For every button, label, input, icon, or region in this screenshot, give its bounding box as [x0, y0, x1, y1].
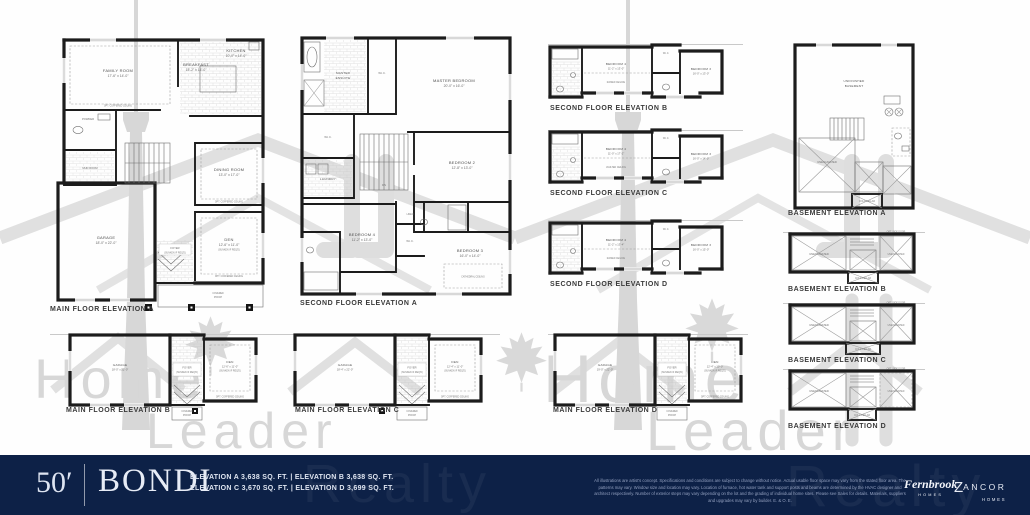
label-den-ceiling: OPT. COFFERED CEILING: [441, 397, 469, 399]
zancor-z: Z: [954, 479, 963, 496]
label-family-dims: 17'-6" x 14'-0": [108, 74, 130, 78]
interior-details: [792, 373, 912, 420]
label-kitchen: KITCHEN: [226, 48, 245, 53]
label-foyer-note: (SUNKEN IF REQ'D): [164, 253, 186, 255]
label-garage-dims: 18'-0" x 22'-0": [112, 368, 129, 372]
label-den: DEN: [224, 237, 233, 242]
label-foyer-note: (SUNKEN IF REQ'D): [661, 372, 683, 374]
label-foyer: FOYER: [170, 246, 179, 250]
label-note: OPT. SIDE DOOR: [887, 303, 906, 305]
label-wic: W.I.C.: [406, 239, 414, 243]
label-bedroom4: BEDROOM 4: [606, 238, 626, 242]
plan-title-main-b: MAIN FLOOR ELEVATION B: [66, 407, 170, 414]
label-den-ceiling: OPT. COFFERED CEILING: [215, 276, 243, 278]
plan-title-main-d: MAIN FLOOR ELEVATION D: [553, 407, 657, 414]
plan-title-basement-c: BASEMENT ELEVATION C: [788, 357, 886, 364]
elevation-areas: ELEVATION A 3,638 SQ. FT. | ELEVATION B …: [190, 472, 394, 494]
elevation-line-2: ELEVATION C 3,670 SQ. FT. | ELEVATION D …: [190, 483, 394, 494]
label-bedroom4: BEDROOM 4: [606, 147, 626, 151]
zancor-homes-logo: ZANCOR HOMES: [954, 479, 1006, 502]
floor-finishes: [552, 237, 580, 271]
label-den-dims: 12'-6" x 11'-0": [222, 365, 238, 369]
label-bedroom3-dims: 16'-0" x 13'-0": [693, 72, 710, 76]
plan-title-basement-b: BASEMENT ELEVATION B: [788, 286, 886, 293]
label-unexcavated: UNEXCAVATED: [888, 253, 905, 256]
label-foyer: FOYER: [667, 366, 676, 370]
plan-main-floor-c: GARAGE 18'-4" x 22'-0" FOYER (SUNKEN IF …: [291, 331, 487, 423]
label-den-dims: 12'-4" x 10'-0": [707, 365, 724, 369]
label-foyer: FOYER: [407, 366, 416, 370]
label-bedroom4: BEDROOM 4: [606, 62, 626, 66]
label-garage-dims: 18'-4" x 22'-0": [337, 368, 354, 372]
label-den-dims: 12'-4" x 11'-0": [447, 365, 463, 369]
label-bedroom4-dims: 11'-2" x 13'-0": [608, 67, 624, 71]
label-bedroom3: BEDROOM 3: [691, 152, 711, 156]
zancor-logo-sub: HOMES: [954, 497, 1006, 502]
plan-title-basement-d: BASEMENT ELEVATION D: [788, 423, 886, 430]
label-den-note: (SUNKEN IF REQ'D): [218, 250, 240, 252]
interior-details: [792, 236, 912, 283]
plan-title-second-a: SECOND FLOOR ELEVATION A: [300, 300, 417, 307]
label-foyer: FOYER: [182, 366, 191, 370]
plan-main-floor-a: FAMILY ROOM 17'-6" x 14'-0" OPT. COFFERE…: [50, 28, 270, 320]
label-bedroom3-dims: 16'-0" x 14'-0": [460, 254, 482, 258]
plan-basement-b: UNEXCAVATED UNEXCAVATED OPT. SIDE DOOR C…: [786, 228, 926, 298]
label-bedroom4-note: RAISED CEILING: [607, 257, 626, 260]
label-dining-dims: 13'-0" x 17'-0": [219, 173, 241, 177]
label-family-room: FAMILY ROOM: [103, 68, 133, 73]
label-bedroom4: BEDROOM 4: [349, 232, 376, 237]
label-bedroom4-dims: 11'-2" x 13'-4": [608, 243, 624, 247]
label-foyer-note: (SUNKEN IF REQ'D): [176, 372, 198, 374]
label-den-note: (SUNKEN IF REQ'D): [444, 371, 466, 373]
label-den: DEN: [711, 360, 718, 364]
label-porch-1: COVERED: [406, 411, 418, 413]
label-foyer-note: (SUNKEN IF REQ'D): [401, 372, 423, 374]
label-dining: DINING ROOM: [214, 167, 244, 172]
label-wic: W.I.C.: [324, 135, 332, 139]
zancor-logo-name: ZANCOR: [954, 479, 1006, 497]
floor-finishes: [304, 40, 366, 196]
label-porch-2: PORCH: [408, 415, 417, 417]
label-porch-1: COVERED: [212, 293, 224, 295]
floorplan-sheet: Home Leader Home Leader: [0, 0, 1030, 515]
label-porch-1: COVERED: [666, 411, 678, 413]
room-labels: BEDROOM 4 11'-0" x 17'-2" VAULTED CEILIN…: [606, 138, 711, 169]
label-linen: LINEN: [407, 214, 414, 216]
label-garage: GARAGE: [338, 363, 352, 367]
label-cold-cellar: COLD CELLAR: [855, 348, 871, 351]
label-den: DEN: [226, 360, 233, 364]
plan-second-floor-c: BEDROOM 4 11'-0" x 17'-2" VAULTED CEILIN…: [548, 128, 726, 204]
plan-basement-a: UNFINISHED BASEMENT UNEXCAVATED COLD CEL…: [786, 40, 926, 222]
footer-divider: [84, 464, 85, 506]
label-den-ceiling: OPT. COFFERED CEILING: [216, 397, 244, 399]
label-den: DEN: [451, 360, 458, 364]
label-bedroom3-dims: 16'-0" x 15'-0": [693, 248, 710, 252]
plan-second-floor-b: BEDROOM 4 11'-2" x 13'-0" RAISED CEILING…: [548, 43, 726, 119]
label-bedroom4-dims: 11'-2" x 13'-0": [352, 238, 373, 242]
plan-title-basement-a: BASEMENT ELEVATION A: [788, 210, 886, 217]
zancor-rest: ANCOR: [963, 482, 1006, 492]
label-cold-cellar: COLD CELLAR: [855, 277, 871, 280]
label-porch-2: PORCH: [183, 415, 192, 417]
label-den-dims: 12'-6" x 11'-0": [219, 243, 240, 247]
label-wic: W.I.C.: [663, 53, 670, 55]
label-family-note: OPT. COFFERED CEILING: [104, 106, 132, 108]
label-cathedral: CATHEDRAL CEILING: [461, 276, 485, 279]
room-labels: UNFINISHED BASEMENT UNEXCAVATED COLD CEL…: [817, 79, 875, 203]
windows: [596, 178, 684, 182]
plan-title-main-c: MAIN FLOOR ELEVATION C: [295, 407, 399, 414]
fernbrook-logo-sub: HOMES: [904, 493, 957, 497]
elevation-line-1: ELEVATION A 3,638 SQ. FT. | ELEVATION B …: [190, 472, 394, 483]
label-breakfast: BREAKFAST: [183, 62, 209, 67]
label-porch-1: COVERED: [181, 411, 193, 413]
label-garage: GARAGE: [97, 235, 116, 240]
label-cold-cellar: COLD CELLAR: [854, 414, 870, 417]
plan-basement-d: UNEXCAVATED UNEXCAVATED OPT. SIDE DOOR C…: [786, 365, 926, 435]
label-wic: W.I.C.: [663, 229, 670, 231]
label-wic: W.I.C.: [663, 138, 670, 140]
label-wic: W.I.C.: [378, 71, 386, 75]
walls: [790, 305, 914, 354]
label-den-note: (SUNKEN IF REQ'D): [704, 371, 726, 373]
label-bedroom3-dims: 16'-0" x 14'-0": [693, 157, 710, 161]
floor-finishes: [552, 61, 580, 95]
label-note: OPT. SIDE DOOR: [887, 232, 906, 234]
label-laundry: LAUNDRY: [320, 177, 336, 181]
fernbrook-logo-name: Fernbrook: [904, 477, 957, 492]
label-garage: GARAGE: [598, 363, 612, 367]
label-unfinished-2: BASEMENT: [845, 84, 864, 88]
interior-details: [792, 307, 912, 354]
label-kitchen-dims: 10'-0" x 14'-0": [226, 54, 248, 58]
label-porch-2: PORCH: [214, 297, 223, 299]
walls: [790, 371, 914, 420]
disclaimer-text: All illustrations are artist's concept. …: [594, 478, 906, 504]
fernbrook-homes-logo: Fernbrook HOMES: [904, 477, 957, 497]
label-bedroom3: BEDROOM 3: [691, 67, 711, 71]
room-labels: BEDROOM 4 11'-2" x 13'-0" RAISED CEILING…: [606, 53, 711, 84]
plan-main-floor-b: GARAGE 18'-0" x 22'-0" FOYER (SUNKEN IF …: [66, 331, 262, 423]
walls: [790, 234, 914, 283]
label-master-dims: 20'-0" x 16'-0": [444, 84, 466, 88]
label-dn: DN: [382, 183, 386, 187]
label-ensuite-2: ENSUITE: [336, 76, 351, 80]
label-porch-2: PORCH: [668, 415, 677, 417]
label-unexcavated: UNEXCAVATED: [888, 390, 905, 393]
windows: [596, 269, 684, 273]
label-bedroom4-dims: 11'-0" x 17'-2": [608, 152, 624, 156]
label-garage-dims: 19'-0" x 22'-0": [597, 368, 614, 372]
windows: [596, 93, 684, 97]
label-bedroom3: BEDROOM 3: [457, 248, 484, 253]
label-note: OPT. SIDE DOOR: [887, 369, 906, 371]
label-cold-cellar: COLD CELLAR: [859, 200, 875, 203]
label-bedroom3: BEDROOM 3: [691, 243, 711, 247]
label-unexcavated: UNEXCAVATED: [809, 389, 829, 393]
label-garage-dims: 18'-0" x 22'-0": [96, 241, 118, 245]
plan-title-main-a: MAIN FLOOR ELEVATION A: [50, 306, 154, 313]
label-master: MASTER BEDROOM: [433, 78, 475, 83]
plan-title-second-b: SECOND FLOOR ELEVATION B: [550, 105, 668, 112]
label-mud-room: MUD ROOM: [82, 166, 98, 170]
label-unfinished-1: UNFINISHED: [844, 79, 865, 83]
floor-finishes: [552, 146, 580, 180]
plan-basement-c: UNEXCAVATED UNEXCAVATED OPT. SIDE DOOR C…: [786, 299, 926, 369]
plan-second-floor-d: BEDROOM 4 11'-2" x 13'-4" RAISED CEILING…: [548, 219, 726, 295]
label-unexcavated: UNEXCAVATED: [809, 252, 829, 256]
plan-title-second-c: SECOND FLOOR ELEVATION C: [550, 190, 668, 197]
plan-title-second-d: SECOND FLOOR ELEVATION D: [550, 281, 668, 288]
lot-width: 50′: [36, 466, 73, 500]
footer-bar: Realty Realty 50′ BONDI ELEVATION A 3,63…: [0, 455, 1030, 515]
plan-main-floor-d: GARAGE 19'-0" x 22'-0" FOYER (SUNKEN IF …: [551, 331, 747, 423]
label-powder: POWDER: [82, 117, 94, 121]
label-breakfast-dims: 15'-2" x 14'-0": [186, 68, 208, 72]
plan-second-floor-a: MASTER ENSUITE W.I.C. MASTER BEDROOM 20'…: [296, 24, 516, 314]
label-bedroom4-note: RAISED CEILING: [607, 81, 626, 84]
label-bedroom4-note: VAULTED CEILING: [606, 166, 626, 169]
label-unexcavated: UNEXCAVATED: [809, 323, 829, 327]
interior-details: [799, 96, 911, 208]
label-unexcavated: UNEXCAVATED: [817, 160, 837, 164]
label-ensuite-1: MASTER: [336, 71, 351, 75]
label-den-ceiling: OPT. COFFERED CEILING: [701, 397, 729, 399]
label-dining-note: OPT. COFFERED CEILING: [215, 202, 243, 204]
label-garage: GARAGE: [113, 363, 127, 367]
label-bedroom2: BEDROOM 2: [449, 160, 476, 165]
label-unexcavated: UNEXCAVATED: [888, 324, 905, 327]
label-den-note: (SUNKEN IF REQ'D): [219, 371, 241, 373]
label-bedroom2-dims: 12'-8" x 13'-0": [452, 166, 474, 170]
room-labels: BEDROOM 4 11'-2" x 13'-4" RAISED CEILING…: [606, 229, 711, 260]
